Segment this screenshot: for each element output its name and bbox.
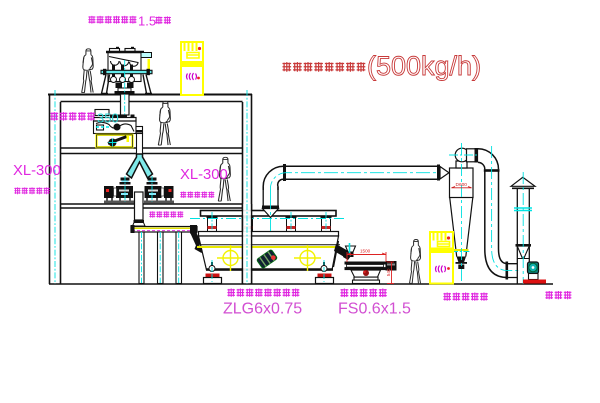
svg-text:350: 350 [97,111,119,126]
svg-text:1500: 1500 [360,249,371,254]
svg-text:FS0.6x1.5: FS0.6x1.5 [338,301,411,318]
svg-text:1.5: 1.5 [138,14,156,29]
svg-text:XL-300: XL-300 [180,167,228,183]
svg-text:XL-300: XL-300 [13,163,61,179]
svg-text:(500kg/h): (500kg/h) [367,51,481,81]
svg-text:ZLG6x0.75: ZLG6x0.75 [223,301,302,318]
svg-text:540: 540 [386,268,391,276]
svg-text:D600: D600 [456,182,468,188]
